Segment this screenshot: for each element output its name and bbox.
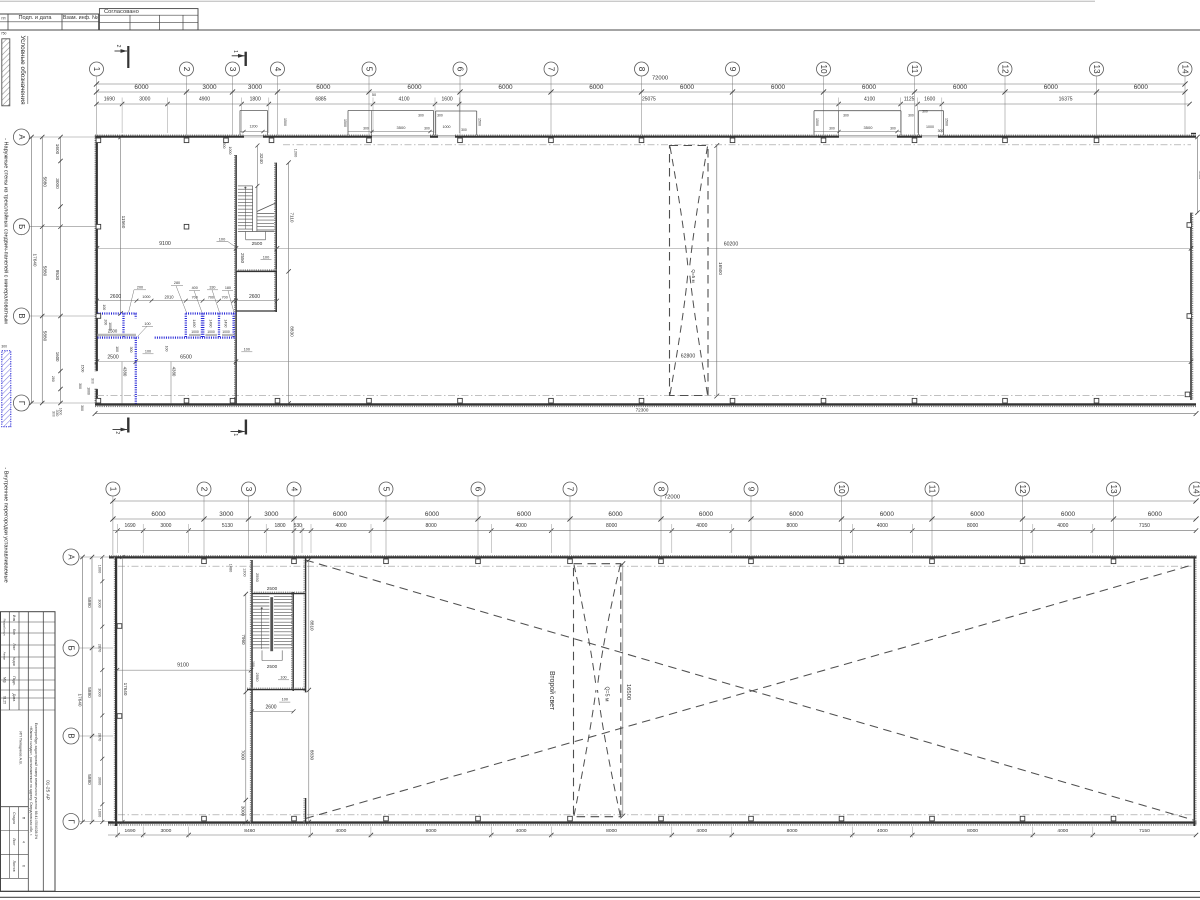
svg-text:300: 300 <box>829 127 835 131</box>
svg-text:1800: 1800 <box>250 97 261 103</box>
svg-text:6000: 6000 <box>1044 84 1059 91</box>
svg-text:3240: 3240 <box>259 153 264 164</box>
svg-text:1: 1 <box>232 50 238 53</box>
svg-text:№док: №док <box>12 657 16 666</box>
svg-text:62800: 62800 <box>681 354 696 360</box>
svg-text:300: 300 <box>890 127 896 131</box>
svg-text:1200: 1200 <box>293 149 297 157</box>
svg-text:12: 12 <box>1001 64 1010 74</box>
svg-text:8000: 8000 <box>426 828 437 834</box>
svg-text:1600: 1600 <box>59 408 63 416</box>
svg-text:6000: 6000 <box>589 84 604 91</box>
svg-text:3000: 3000 <box>98 777 102 785</box>
svg-text:300: 300 <box>418 114 424 118</box>
svg-text:9530: 9530 <box>55 270 60 281</box>
svg-text:01.25: 01.25 <box>3 696 7 704</box>
svg-text:2: 2 <box>200 487 209 492</box>
svg-text:1000: 1000 <box>443 125 451 129</box>
svg-text:4000: 4000 <box>1057 828 1068 834</box>
svg-text:Стадия: Стадия <box>12 812 16 824</box>
svg-text:6: 6 <box>456 67 465 72</box>
svg-text:4900: 4900 <box>199 97 210 103</box>
svg-text:5880: 5880 <box>42 177 47 188</box>
svg-text:6000: 6000 <box>134 84 149 91</box>
svg-text:3000: 3000 <box>264 511 279 518</box>
svg-text:100: 100 <box>280 675 286 679</box>
svg-text:Второй свет: Второй свет <box>548 671 556 711</box>
svg-text:3000: 3000 <box>139 97 150 103</box>
svg-text:1000: 1000 <box>87 387 91 395</box>
svg-text:2870: 2870 <box>98 644 102 652</box>
svg-text:1480: 1480 <box>228 564 232 572</box>
svg-text:6000: 6000 <box>771 84 786 91</box>
svg-text:Лист: Лист <box>12 643 16 651</box>
svg-text:10: 10 <box>819 64 828 74</box>
svg-text:2600: 2600 <box>265 705 276 711</box>
svg-text:А: А <box>67 554 76 560</box>
svg-text:6000: 6000 <box>1061 511 1076 518</box>
svg-text:Подп. и дата: Подп. и дата <box>19 15 53 21</box>
svg-text:6000: 6000 <box>862 84 877 91</box>
svg-text:1: 1 <box>92 67 101 72</box>
svg-text:13: 13 <box>1109 484 1118 494</box>
svg-text:4000: 4000 <box>516 828 527 834</box>
svg-text:7: 7 <box>566 487 575 492</box>
svg-text:4: 4 <box>290 487 299 492</box>
svg-text:1000: 1000 <box>207 330 215 334</box>
svg-text:1690: 1690 <box>104 97 115 103</box>
svg-text:8000: 8000 <box>606 523 617 529</box>
svg-text:4000: 4000 <box>335 828 346 834</box>
svg-text:700: 700 <box>192 295 198 299</box>
svg-text:1500: 1500 <box>478 118 482 126</box>
svg-text:Б: Б <box>17 224 26 229</box>
svg-text:9: 9 <box>747 487 756 492</box>
svg-text:1600: 1600 <box>442 97 453 103</box>
svg-text:10: 10 <box>837 484 846 494</box>
svg-text:4: 4 <box>273 67 282 72</box>
svg-text:5880: 5880 <box>87 774 92 785</box>
svg-text:3000: 3000 <box>240 806 245 817</box>
svg-text:6000: 6000 <box>789 511 804 518</box>
svg-text:50: 50 <box>372 93 376 97</box>
svg-text:- Наружные стены из трехслойны: - Наружные стены из трехслойных сэндвич-… <box>3 138 10 324</box>
svg-text:3000: 3000 <box>55 178 60 189</box>
svg-text:14: 14 <box>1181 64 1190 74</box>
svg-text:72300: 72300 <box>636 407 649 412</box>
svg-text:4000: 4000 <box>696 523 707 529</box>
svg-text:6000: 6000 <box>1148 511 1163 518</box>
svg-text:12: 12 <box>1018 484 1027 494</box>
svg-text:В: В <box>67 733 76 738</box>
svg-text:11560: 11560 <box>121 216 126 229</box>
svg-text:11: 11 <box>910 65 919 74</box>
svg-text:300: 300 <box>922 110 928 114</box>
svg-text:6000: 6000 <box>880 511 895 518</box>
svg-text:8000: 8000 <box>787 828 798 834</box>
svg-text:1690: 1690 <box>124 523 135 529</box>
svg-text:16500: 16500 <box>718 262 723 275</box>
svg-text:8: 8 <box>637 67 646 72</box>
svg-text:1600: 1600 <box>55 352 60 362</box>
svg-text:72000: 72000 <box>664 495 680 501</box>
svg-text:100: 100 <box>263 254 270 259</box>
svg-text:6000: 6000 <box>407 84 422 91</box>
svg-text:4000: 4000 <box>877 523 888 529</box>
svg-text:2600: 2600 <box>110 294 121 300</box>
svg-text:3000: 3000 <box>160 828 171 834</box>
svg-text:5: 5 <box>382 487 391 492</box>
svg-text:6885: 6885 <box>315 97 326 103</box>
svg-text:100: 100 <box>102 304 106 310</box>
svg-text:3000: 3000 <box>160 523 171 529</box>
svg-text:4000: 4000 <box>696 828 707 834</box>
svg-text:2500: 2500 <box>107 355 118 361</box>
svg-text:5130: 5130 <box>222 523 233 529</box>
svg-text:6000: 6000 <box>699 511 714 518</box>
svg-text:1000: 1000 <box>142 295 150 299</box>
svg-text:1690: 1690 <box>125 828 136 834</box>
svg-text:100: 100 <box>219 236 226 241</box>
svg-text:700: 700 <box>208 295 214 299</box>
svg-text:4380: 4380 <box>122 367 127 377</box>
svg-text:300: 300 <box>461 128 467 132</box>
svg-text:гл: гл <box>1 16 6 21</box>
svg-text:9100: 9100 <box>159 241 171 247</box>
svg-text:8000: 8000 <box>967 523 978 529</box>
svg-text:Согласовано: Согласовано <box>104 9 139 15</box>
svg-text:750: 750 <box>1 32 7 36</box>
svg-text:1000: 1000 <box>926 125 934 129</box>
svg-text:6000: 6000 <box>316 84 331 91</box>
svg-text:3000: 3000 <box>248 84 263 91</box>
svg-text:4000: 4000 <box>877 828 888 834</box>
svg-text:7960: 7960 <box>241 634 246 645</box>
svg-text:Мф: Мф <box>3 677 7 683</box>
svg-text:Б: Б <box>67 645 76 650</box>
svg-text:6000: 6000 <box>953 84 968 91</box>
svg-text:2600: 2600 <box>249 294 260 300</box>
svg-text:2550: 2550 <box>240 253 245 264</box>
svg-text:7: 7 <box>547 67 556 72</box>
svg-text:«Южные склады», расположенные: «Южные склады», расположенные по адресу:… <box>29 726 33 836</box>
svg-text:2: 2 <box>115 45 121 48</box>
svg-text:300: 300 <box>843 114 849 118</box>
svg-text:Кол: Кол <box>12 629 16 635</box>
svg-text:6000: 6000 <box>333 511 348 518</box>
svg-text:300: 300 <box>363 127 369 131</box>
svg-text:2500: 2500 <box>267 586 278 591</box>
svg-text:3000: 3000 <box>202 84 217 91</box>
svg-text:17640: 17640 <box>32 253 37 266</box>
svg-text:1600: 1600 <box>55 144 60 155</box>
svg-text:8000: 8000 <box>967 828 978 834</box>
svg-text:1500: 1500 <box>945 118 949 126</box>
svg-text:1500: 1500 <box>81 365 85 373</box>
svg-text:4380: 4380 <box>171 367 176 377</box>
svg-text:5880: 5880 <box>87 597 92 608</box>
svg-text:6: 6 <box>474 487 483 492</box>
svg-text:Екатеринбург, кадастровый номе: Екатеринбург, кадастровый номер земельно… <box>34 723 38 839</box>
svg-text:8000: 8000 <box>606 828 617 834</box>
svg-text:300: 300 <box>437 114 443 118</box>
svg-text:300: 300 <box>90 378 94 384</box>
svg-text:Лист: Лист <box>12 838 16 846</box>
svg-text:1000: 1000 <box>191 330 199 334</box>
svg-text:5880: 5880 <box>87 687 92 698</box>
svg-text:100: 100 <box>145 349 151 353</box>
svg-text:6000: 6000 <box>1134 84 1149 91</box>
svg-text:8: 8 <box>657 487 666 492</box>
svg-text:4000: 4000 <box>335 523 346 529</box>
svg-text:9100: 9100 <box>177 663 189 669</box>
svg-text:2: 2 <box>114 431 120 434</box>
svg-text:2550: 2550 <box>255 673 260 683</box>
svg-text:2870: 2870 <box>98 733 102 741</box>
svg-text:Q=5 м: Q=5 м <box>691 269 696 282</box>
svg-text:1500: 1500 <box>283 118 287 126</box>
svg-text:300: 300 <box>1 345 7 349</box>
svg-text:А: А <box>17 134 26 140</box>
svg-text:1600: 1600 <box>98 565 102 573</box>
svg-text:3000: 3000 <box>98 599 102 607</box>
svg-text:100: 100 <box>251 661 255 667</box>
svg-text:6000: 6000 <box>680 84 695 91</box>
svg-text:3000: 3000 <box>98 688 102 696</box>
svg-text:100: 100 <box>282 698 288 702</box>
svg-text:8830: 8830 <box>289 326 294 337</box>
svg-text:Взам. инф. №: Взам. инф. № <box>63 15 98 21</box>
svg-text:300: 300 <box>908 114 914 118</box>
svg-text:72000: 72000 <box>652 76 668 82</box>
svg-text:2550: 2550 <box>255 573 260 583</box>
svg-text:Q=5 м: Q=5 м <box>604 687 610 702</box>
svg-text:1490: 1490 <box>192 319 196 327</box>
svg-text:7150: 7150 <box>1139 828 1150 834</box>
svg-text:5880: 5880 <box>42 266 47 277</box>
svg-text:100: 100 <box>144 322 150 326</box>
svg-text:8460: 8460 <box>244 828 255 834</box>
svg-text:В: В <box>17 313 26 318</box>
svg-text:6000: 6000 <box>970 511 985 518</box>
svg-text:4: 4 <box>22 841 26 843</box>
svg-text:1200: 1200 <box>250 125 258 129</box>
svg-text:8830: 8830 <box>309 750 314 761</box>
svg-text:2500: 2500 <box>267 664 278 669</box>
svg-text:Подп.: Подп. <box>12 676 16 685</box>
svg-text:5880: 5880 <box>42 331 47 342</box>
svg-text:6000: 6000 <box>151 511 166 518</box>
svg-text:4100: 4100 <box>398 97 409 103</box>
svg-text:530: 530 <box>294 523 303 529</box>
svg-text:330: 330 <box>209 285 215 289</box>
svg-text:300: 300 <box>78 383 82 389</box>
svg-text:3000: 3000 <box>219 511 234 518</box>
svg-text:- Внутренние перегородки устан: - Внутренние перегородки устанавливаемые <box>3 467 9 582</box>
svg-text:6000: 6000 <box>608 511 623 518</box>
svg-text:6000: 6000 <box>425 511 440 518</box>
svg-text:400: 400 <box>192 286 198 290</box>
svg-text:7110: 7110 <box>289 212 294 222</box>
svg-text:Листов: Листов <box>12 860 16 871</box>
svg-text:1125: 1125 <box>904 97 915 103</box>
svg-text:200: 200 <box>103 319 107 325</box>
svg-text:280: 280 <box>51 376 55 382</box>
svg-text:8000: 8000 <box>787 523 798 529</box>
svg-text:3500: 3500 <box>864 125 874 130</box>
svg-text:6000: 6000 <box>517 511 532 518</box>
svg-text:1490: 1490 <box>224 319 228 327</box>
svg-text:7150: 7150 <box>1139 523 1150 529</box>
svg-text:1000: 1000 <box>228 147 232 155</box>
svg-text:100: 100 <box>115 346 119 352</box>
svg-text:2: 2 <box>182 67 191 72</box>
svg-text:300: 300 <box>938 129 944 133</box>
svg-text:1: 1 <box>108 487 117 492</box>
svg-text:1490: 1490 <box>208 319 212 327</box>
svg-text:6000: 6000 <box>498 84 513 91</box>
svg-text:1500: 1500 <box>343 119 347 127</box>
svg-text:16375: 16375 <box>1059 97 1073 103</box>
svg-text:7000: 7000 <box>240 750 245 761</box>
svg-text:13: 13 <box>1092 64 1101 74</box>
svg-text:6500: 6500 <box>180 355 192 361</box>
svg-text:ИП Пилщиков А.В.: ИП Пилщиков А.В. <box>18 731 23 765</box>
svg-text:1: 1 <box>232 433 238 436</box>
svg-text:300: 300 <box>80 405 84 411</box>
svg-text:11: 11 <box>928 485 937 494</box>
svg-text:14: 14 <box>1192 484 1200 494</box>
svg-text:300: 300 <box>129 347 133 353</box>
svg-text:180: 180 <box>225 286 231 290</box>
svg-text:700: 700 <box>222 295 228 299</box>
svg-text:17640: 17640 <box>123 683 128 696</box>
svg-text:1000: 1000 <box>222 330 230 334</box>
svg-text:6: 6 <box>22 865 26 867</box>
svg-text:200: 200 <box>137 285 143 289</box>
svg-text:3500: 3500 <box>397 125 407 130</box>
svg-text:25075: 25075 <box>642 97 656 103</box>
svg-text:4000: 4000 <box>516 523 527 529</box>
svg-text:3: 3 <box>228 67 237 72</box>
svg-text:3: 3 <box>244 487 253 492</box>
svg-text:17640: 17640 <box>78 693 83 706</box>
svg-text:60200: 60200 <box>724 241 739 247</box>
svg-text:1600: 1600 <box>98 809 102 817</box>
svg-text:8810: 8810 <box>309 620 314 631</box>
svg-text:4100: 4100 <box>864 97 875 103</box>
svg-text:1600: 1600 <box>924 97 935 103</box>
svg-text:2500: 2500 <box>108 328 118 333</box>
svg-text:1500: 1500 <box>815 118 819 126</box>
svg-text:1800: 1800 <box>274 523 285 529</box>
svg-text:1200: 1200 <box>243 568 247 576</box>
svg-text:16500: 16500 <box>625 684 631 700</box>
svg-text:9: 9 <box>728 67 737 72</box>
svg-text:Изм: Изм <box>12 615 16 622</box>
svg-text:2500: 2500 <box>252 241 263 247</box>
svg-text:Разработал: Разработал <box>3 619 7 636</box>
svg-text:100: 100 <box>165 346 169 352</box>
svg-text:Автан: Автан <box>3 652 7 661</box>
svg-text:300: 300 <box>424 127 430 131</box>
svg-text:300: 300 <box>52 411 56 417</box>
svg-text:500: 500 <box>222 143 226 149</box>
svg-text:Условные обозначения: Условные обозначения <box>19 35 27 105</box>
svg-text:2010: 2010 <box>164 295 174 300</box>
svg-text:5: 5 <box>365 67 374 72</box>
svg-text:100: 100 <box>244 347 250 351</box>
svg-text:8000: 8000 <box>426 523 437 529</box>
svg-text:280: 280 <box>174 281 180 285</box>
svg-text:01-25 АР: 01-25 АР <box>44 780 50 800</box>
svg-text:Дата: Дата <box>12 694 16 702</box>
svg-text:4000: 4000 <box>1057 523 1068 529</box>
